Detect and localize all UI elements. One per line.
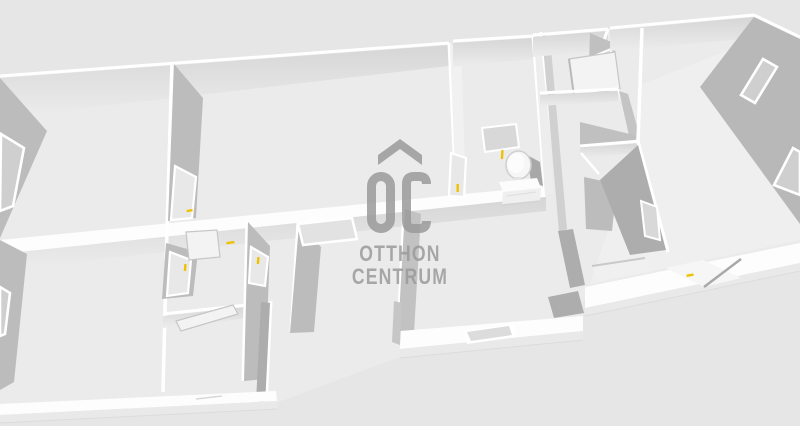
floorplan-canvas[interactable]: OTTHON CENTRUM [0,0,800,426]
door-2 [167,252,191,296]
floorplan-viewer[interactable]: OTTHON CENTRUM [0,0,800,426]
door-handle-4 [257,257,260,264]
door-7 [641,201,660,240]
door-1 [171,166,196,220]
door-handle-2 [184,264,187,271]
watermark-line1: OTTHON [359,242,440,266]
door-5 [482,124,519,152]
door-handle-5 [457,184,459,192]
floor-hatch [298,218,357,245]
watermark-line2: CENTRUM [352,265,448,289]
open-door-leaf-1 [186,230,220,260]
door-handle-6 [501,150,504,159]
